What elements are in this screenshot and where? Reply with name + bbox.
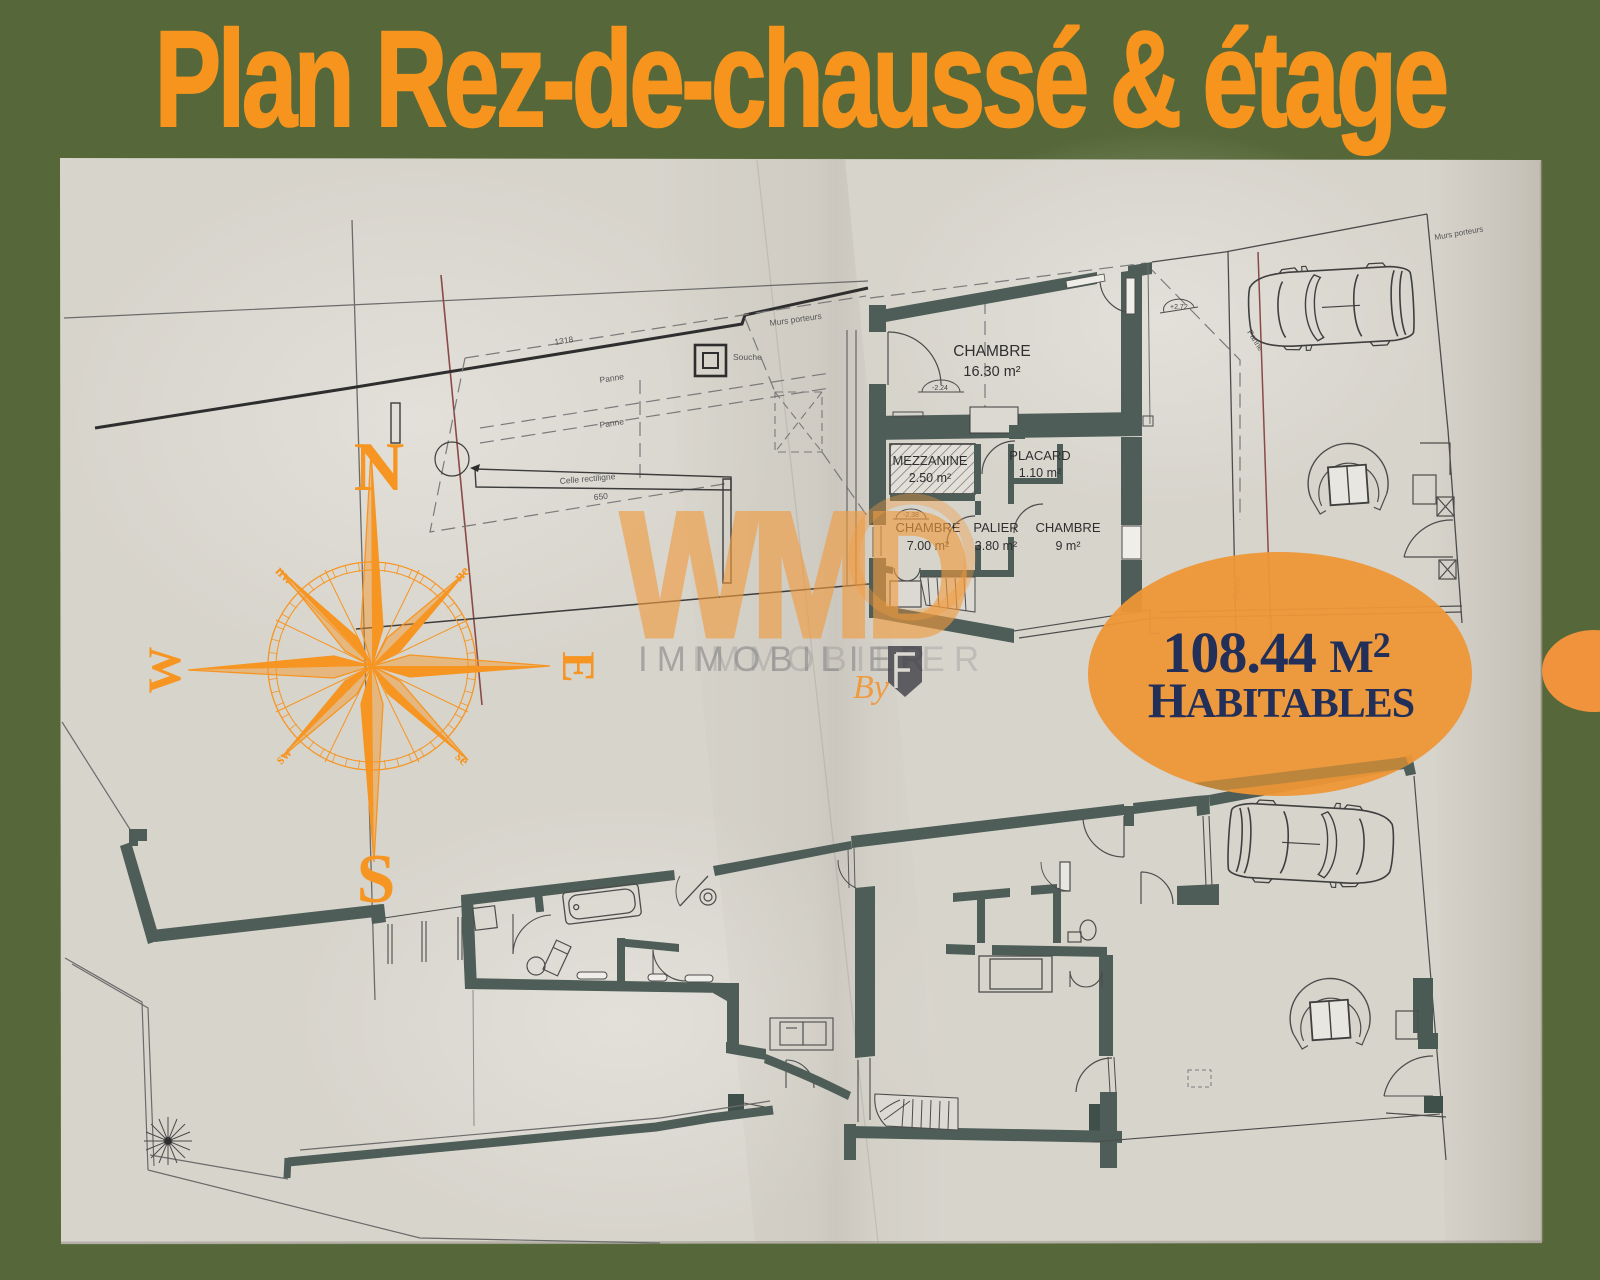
svg-text:CHAMBRE: CHAMBRE [953,343,1031,360]
svg-text:CHAMBRE: CHAMBRE [1035,520,1100,535]
svg-text:1.10 m²: 1.10 m² [1019,466,1061,480]
svg-text:+2.72: +2.72 [1170,304,1188,311]
svg-text:By: By [853,669,890,706]
svg-text:E: E [552,651,604,682]
svg-text:IMMOBILIER: IMMOBILIER [692,640,988,679]
svg-text:-2.24: -2.24 [932,385,948,392]
svg-text:16.30 m²: 16.30 m² [963,364,1020,380]
svg-text:N: N [354,429,405,506]
svg-text:3.80 m²: 3.80 m² [975,539,1017,553]
svg-text:Souche: Souche [733,352,762,362]
svg-text:W: W [139,647,191,694]
svg-text:S: S [357,841,396,918]
svg-text:9 m²: 9 m² [1056,539,1081,553]
svg-text:PALIER: PALIER [973,520,1018,535]
svg-text:PLACARD: PLACARD [1009,448,1070,463]
svg-text:MEZZANINE: MEZZANINE [892,453,967,468]
svg-text:650: 650 [593,491,608,502]
svg-text:HABITABLES: HABITABLES [1148,672,1414,728]
